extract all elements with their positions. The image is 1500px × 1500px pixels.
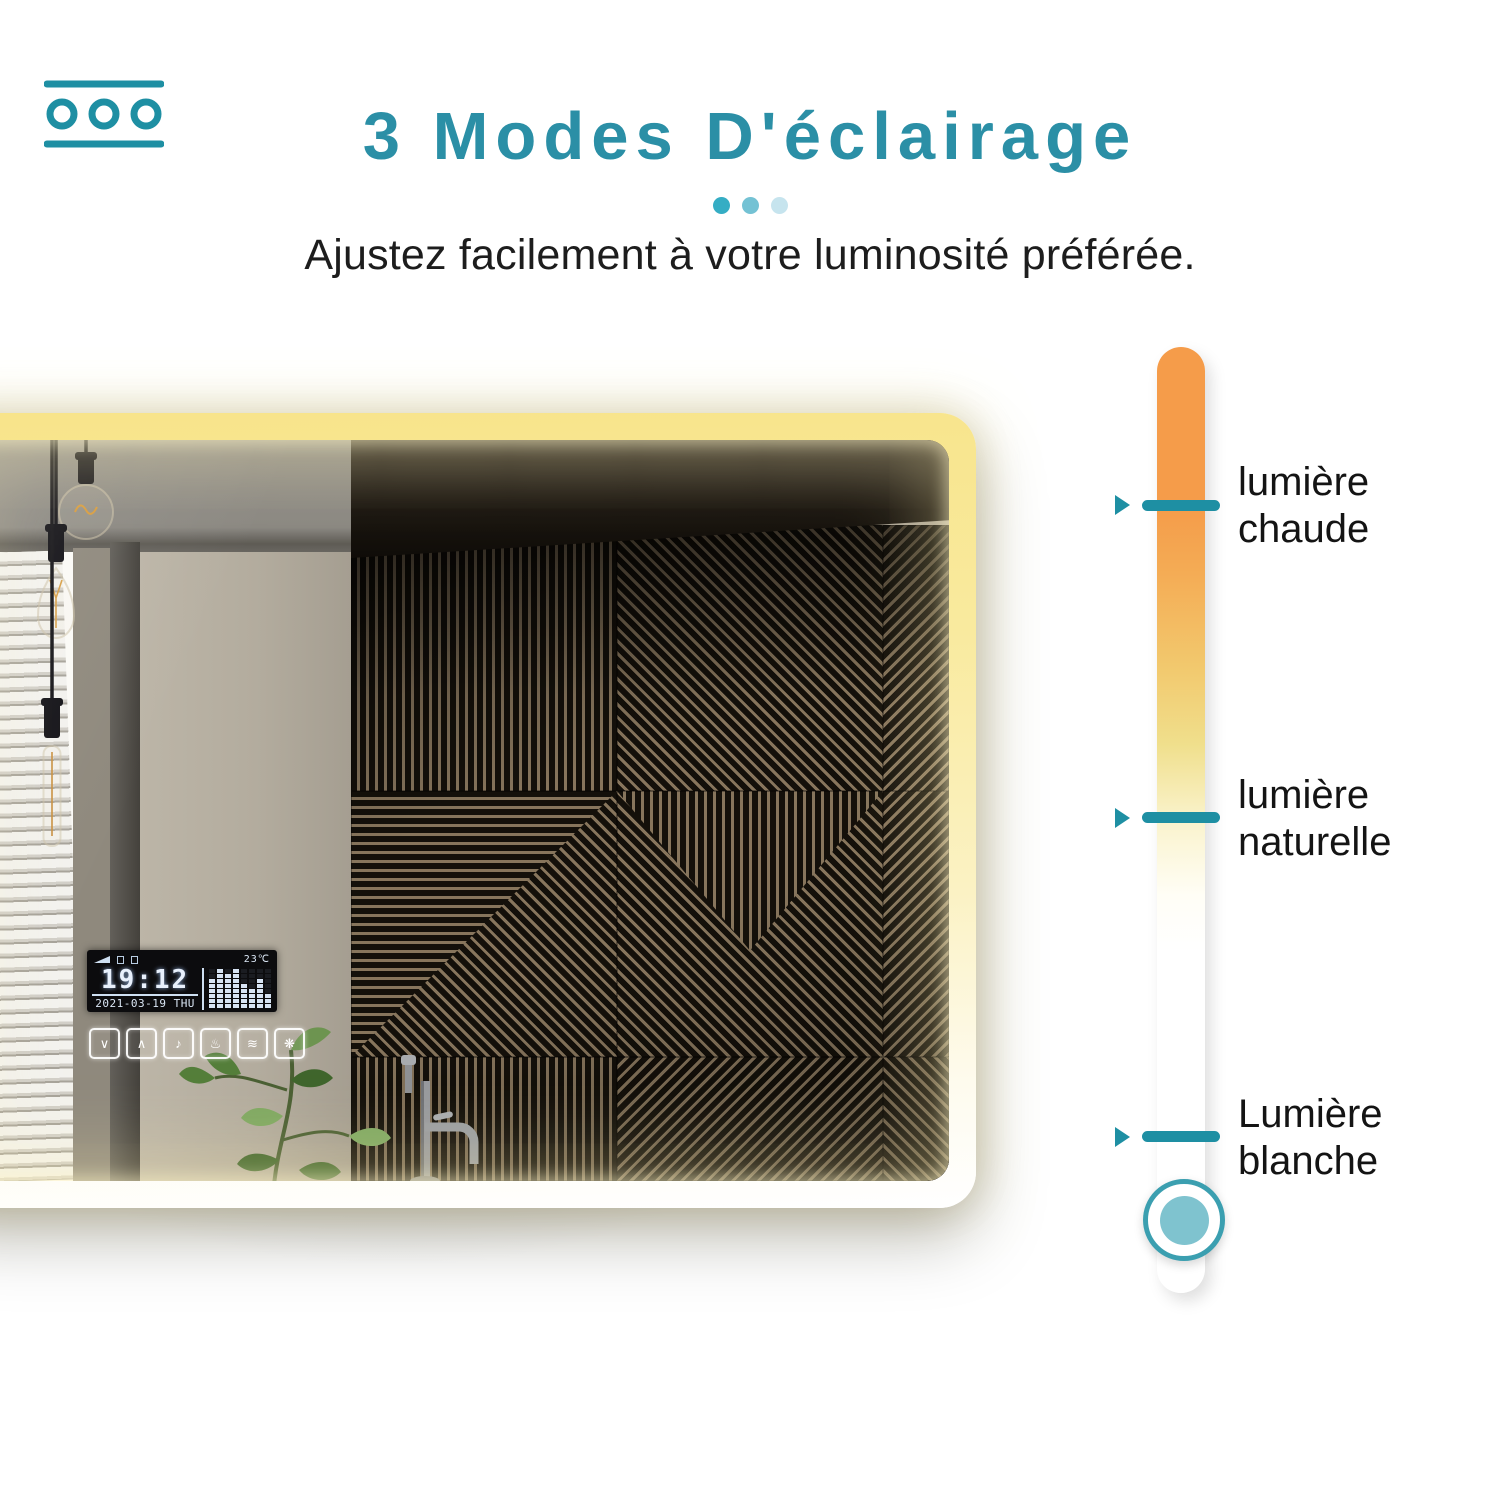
time-readout: 19:12 <box>92 967 198 993</box>
mode-label-natural: lumière naturelle <box>1238 772 1391 866</box>
temperature-readout: 23℃ <box>244 954 270 965</box>
touch-glyph: ♪ <box>175 1036 182 1051</box>
wall-shadow <box>73 548 110 1181</box>
geometric-wood-panels <box>351 525 949 1181</box>
spectrum-equalizer <box>208 967 272 1011</box>
pointer-arrow <box>1115 495 1130 515</box>
mirror-lcd-display: 23℃ 19:12 2021-03-19 THU <box>87 950 277 1012</box>
tick-mark <box>1142 500 1220 511</box>
page-title: 3 Modes D'éclairage <box>0 98 1500 175</box>
defog-icon[interactable]: ≋ <box>237 1028 268 1059</box>
pointer-arrow <box>1115 1127 1130 1147</box>
ceiling <box>0 440 351 558</box>
dot-1 <box>713 197 730 214</box>
bathroom-scene: 23℃ 19:12 2021-03-19 THU ∨ ∧ ♪ ♨ ≋ <box>0 440 949 1181</box>
date-readout: 2021-03-19 THU <box>92 994 198 1010</box>
tick-mark <box>1142 812 1220 823</box>
snowflake-icon[interactable]: ❋ <box>274 1028 305 1059</box>
touch-glyph: ♨ <box>210 1036 222 1052</box>
mute-icon <box>117 956 124 964</box>
page: 3 Modes D'éclairage Ajustez facilement à… <box>0 0 1500 1500</box>
mode-label-line: Lumière <box>1238 1091 1383 1138</box>
slider-knob-fill <box>1160 1196 1209 1245</box>
title-dots <box>0 197 1500 214</box>
wall-pillar <box>110 542 140 1181</box>
dot-3 <box>771 197 788 214</box>
page-subtitle: Ajustez facilement à votre luminosité pr… <box>0 231 1500 280</box>
mode-label-line: chaude <box>1238 506 1369 553</box>
steam-icon[interactable]: ♨ <box>200 1028 231 1059</box>
wall <box>140 552 351 1181</box>
mode-label-line: lumière <box>1238 772 1391 819</box>
mode-label-line: naturelle <box>1238 819 1391 866</box>
music-note-icon[interactable]: ♪ <box>163 1028 194 1059</box>
signal-icon <box>94 956 110 963</box>
touch-glyph: ∨ <box>100 1036 110 1052</box>
mirror-photo: 23℃ 19:12 2021-03-19 THU ∨ ∧ ♪ ♨ ≋ <box>0 413 976 1208</box>
lcd-divider <box>202 968 204 1010</box>
touch-glyph: ❋ <box>284 1036 295 1052</box>
tick-mark <box>1142 1131 1220 1142</box>
battery-icon <box>131 956 138 964</box>
pointer-arrow <box>1115 808 1130 828</box>
chevron-up-icon[interactable]: ∧ <box>126 1028 157 1059</box>
touch-glyph: ∧ <box>137 1036 147 1052</box>
slider-knob[interactable] <box>1143 1179 1225 1261</box>
chevron-down-icon[interactable]: ∨ <box>89 1028 120 1059</box>
touch-controls: ∨ ∧ ♪ ♨ ≋ ❋ <box>89 1028 305 1059</box>
mode-label-warm: lumière chaude <box>1238 459 1369 553</box>
mode-label-line: blanche <box>1238 1138 1383 1185</box>
touch-glyph: ≋ <box>247 1036 258 1052</box>
mode-label-white: Lumière blanche <box>1238 1091 1383 1185</box>
mode-label-line: lumière <box>1238 459 1369 506</box>
dot-2 <box>742 197 759 214</box>
